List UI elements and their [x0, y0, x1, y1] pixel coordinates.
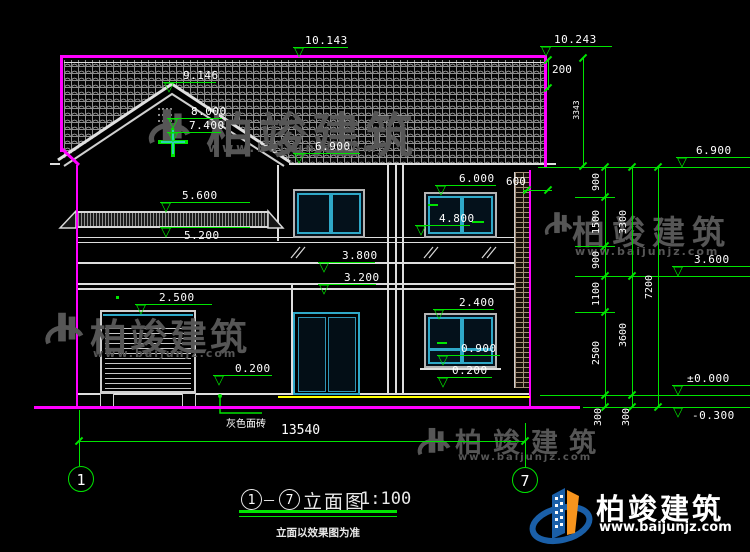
level-marker-porch: ▽0.200: [213, 362, 272, 392]
dim-total-line: [79, 441, 525, 442]
level-triangle-icon: ▽: [434, 309, 444, 320]
dim-600: 600: [506, 175, 526, 188]
level-triangle-icon: ▽: [294, 47, 304, 58]
level-marker-win2-head: ▽6.000: [435, 172, 496, 202]
level-marker-ridge-left: ▽10.143: [293, 34, 348, 64]
title-separator: －: [262, 491, 276, 511]
level-marker-eave-left: ▽6.900: [293, 140, 360, 170]
level-marker-3600: ▽3.600: [672, 253, 750, 283]
level-marker-win1-sill: ▽0.200: [437, 364, 492, 394]
level-triangle-icon: ▽: [436, 185, 446, 196]
watermark-icon: [541, 202, 573, 246]
dim-chain-inner-0: 900: [590, 162, 604, 202]
logo-url: www.baijunjz.com: [599, 520, 732, 535]
dim-chain-mid-0: 3300: [617, 202, 631, 242]
grid-bubble-left: 1: [68, 466, 94, 492]
level-marker-ridge-right: ▽10.243: [540, 33, 612, 63]
dim-chain-mid-1: 3600: [617, 315, 631, 355]
logo-icon: [528, 483, 594, 549]
elevation-drawing-canvas: 柏竣建筑 www.baijunjz.com 柏竣建筑 www.baijunjz.…: [0, 0, 750, 552]
level-marker-eave-right: ▽6.900: [676, 144, 750, 174]
level-marker-canopy-bottom: ▽5.200: [160, 214, 250, 244]
level-triangle-icon: ▽: [164, 82, 174, 93]
dim-chain-inner-3: 1100: [590, 274, 604, 314]
dim-chain-inner-4: 2500: [590, 333, 604, 373]
wall-right-edge: [529, 170, 531, 407]
ground-line: [34, 406, 580, 409]
dim-3343: 3343: [570, 90, 584, 130]
level-marker-win2-sill: ▽4.800: [415, 212, 470, 242]
dim-200: 200: [552, 63, 572, 76]
level-triangle-icon: ▽: [136, 304, 146, 315]
chain-line-mid: [632, 167, 633, 408]
awning-end-right: [268, 211, 283, 228]
level-triangle-icon: ▽: [438, 377, 448, 388]
material-leader-line: [218, 394, 262, 413]
watermark-icon: [413, 420, 451, 464]
dim-chain-inner-5: 300: [592, 397, 606, 437]
wall-left-edge: [76, 165, 78, 408]
watermark-icon: [40, 305, 84, 353]
level-triangle-icon: ▽: [214, 375, 224, 386]
dim-chain-outer-0: 7200: [643, 267, 657, 307]
dim-chain-inner-1: 1500: [590, 202, 604, 242]
porch-step-line: [278, 396, 530, 398]
dim-total-ext-right: [525, 423, 526, 467]
ref-dot-garage: [116, 296, 119, 299]
level-marker-minus300: ▽-0.300: [672, 394, 750, 424]
title-grid-to: 7: [279, 489, 300, 510]
level-triangle-icon: ▽: [294, 153, 304, 164]
ref-dash-2f: [428, 204, 438, 206]
title-grid-from: 1: [241, 489, 262, 510]
level-triangle-icon: ▽: [677, 157, 687, 168]
level-triangle-icon: ▽: [416, 225, 426, 236]
awning-end-left: [60, 211, 76, 228]
title-note: 立面以效果图为准: [276, 525, 360, 540]
level-marker-garage-head: ▽2.500: [135, 291, 212, 321]
level-triangle-icon: ▽: [319, 284, 329, 295]
watermark-url: www.baijunjz.com: [93, 347, 237, 360]
level-marker-win1-head: ▽2.400: [433, 296, 494, 326]
level-triangle-icon: ▽: [541, 46, 551, 57]
title-underline-thin: [239, 516, 397, 517]
level-triangle-icon: ▽: [168, 132, 178, 143]
chain-line-outer: [658, 167, 659, 408]
level-triangle-icon: ▽: [673, 266, 683, 277]
level-triangle-icon: ▽: [673, 407, 683, 418]
title-scale: 1:100: [360, 489, 411, 509]
dim-chain-mid-2: 300: [620, 397, 634, 437]
material-label: 灰色面砖: [226, 415, 266, 430]
level-marker-floor2: ▽3.200: [318, 271, 376, 301]
chain-line-inner: [605, 167, 606, 408]
level-marker-gable-cross: ▽7.400: [167, 119, 221, 149]
dim-total-width: 13540: [281, 423, 320, 438]
title-underline-thick: [239, 510, 397, 513]
level-triangle-icon: ▽: [161, 202, 171, 213]
level-triangle-icon: ▽: [161, 227, 171, 238]
level-marker-gable-peak: ▽9.146: [163, 69, 216, 99]
